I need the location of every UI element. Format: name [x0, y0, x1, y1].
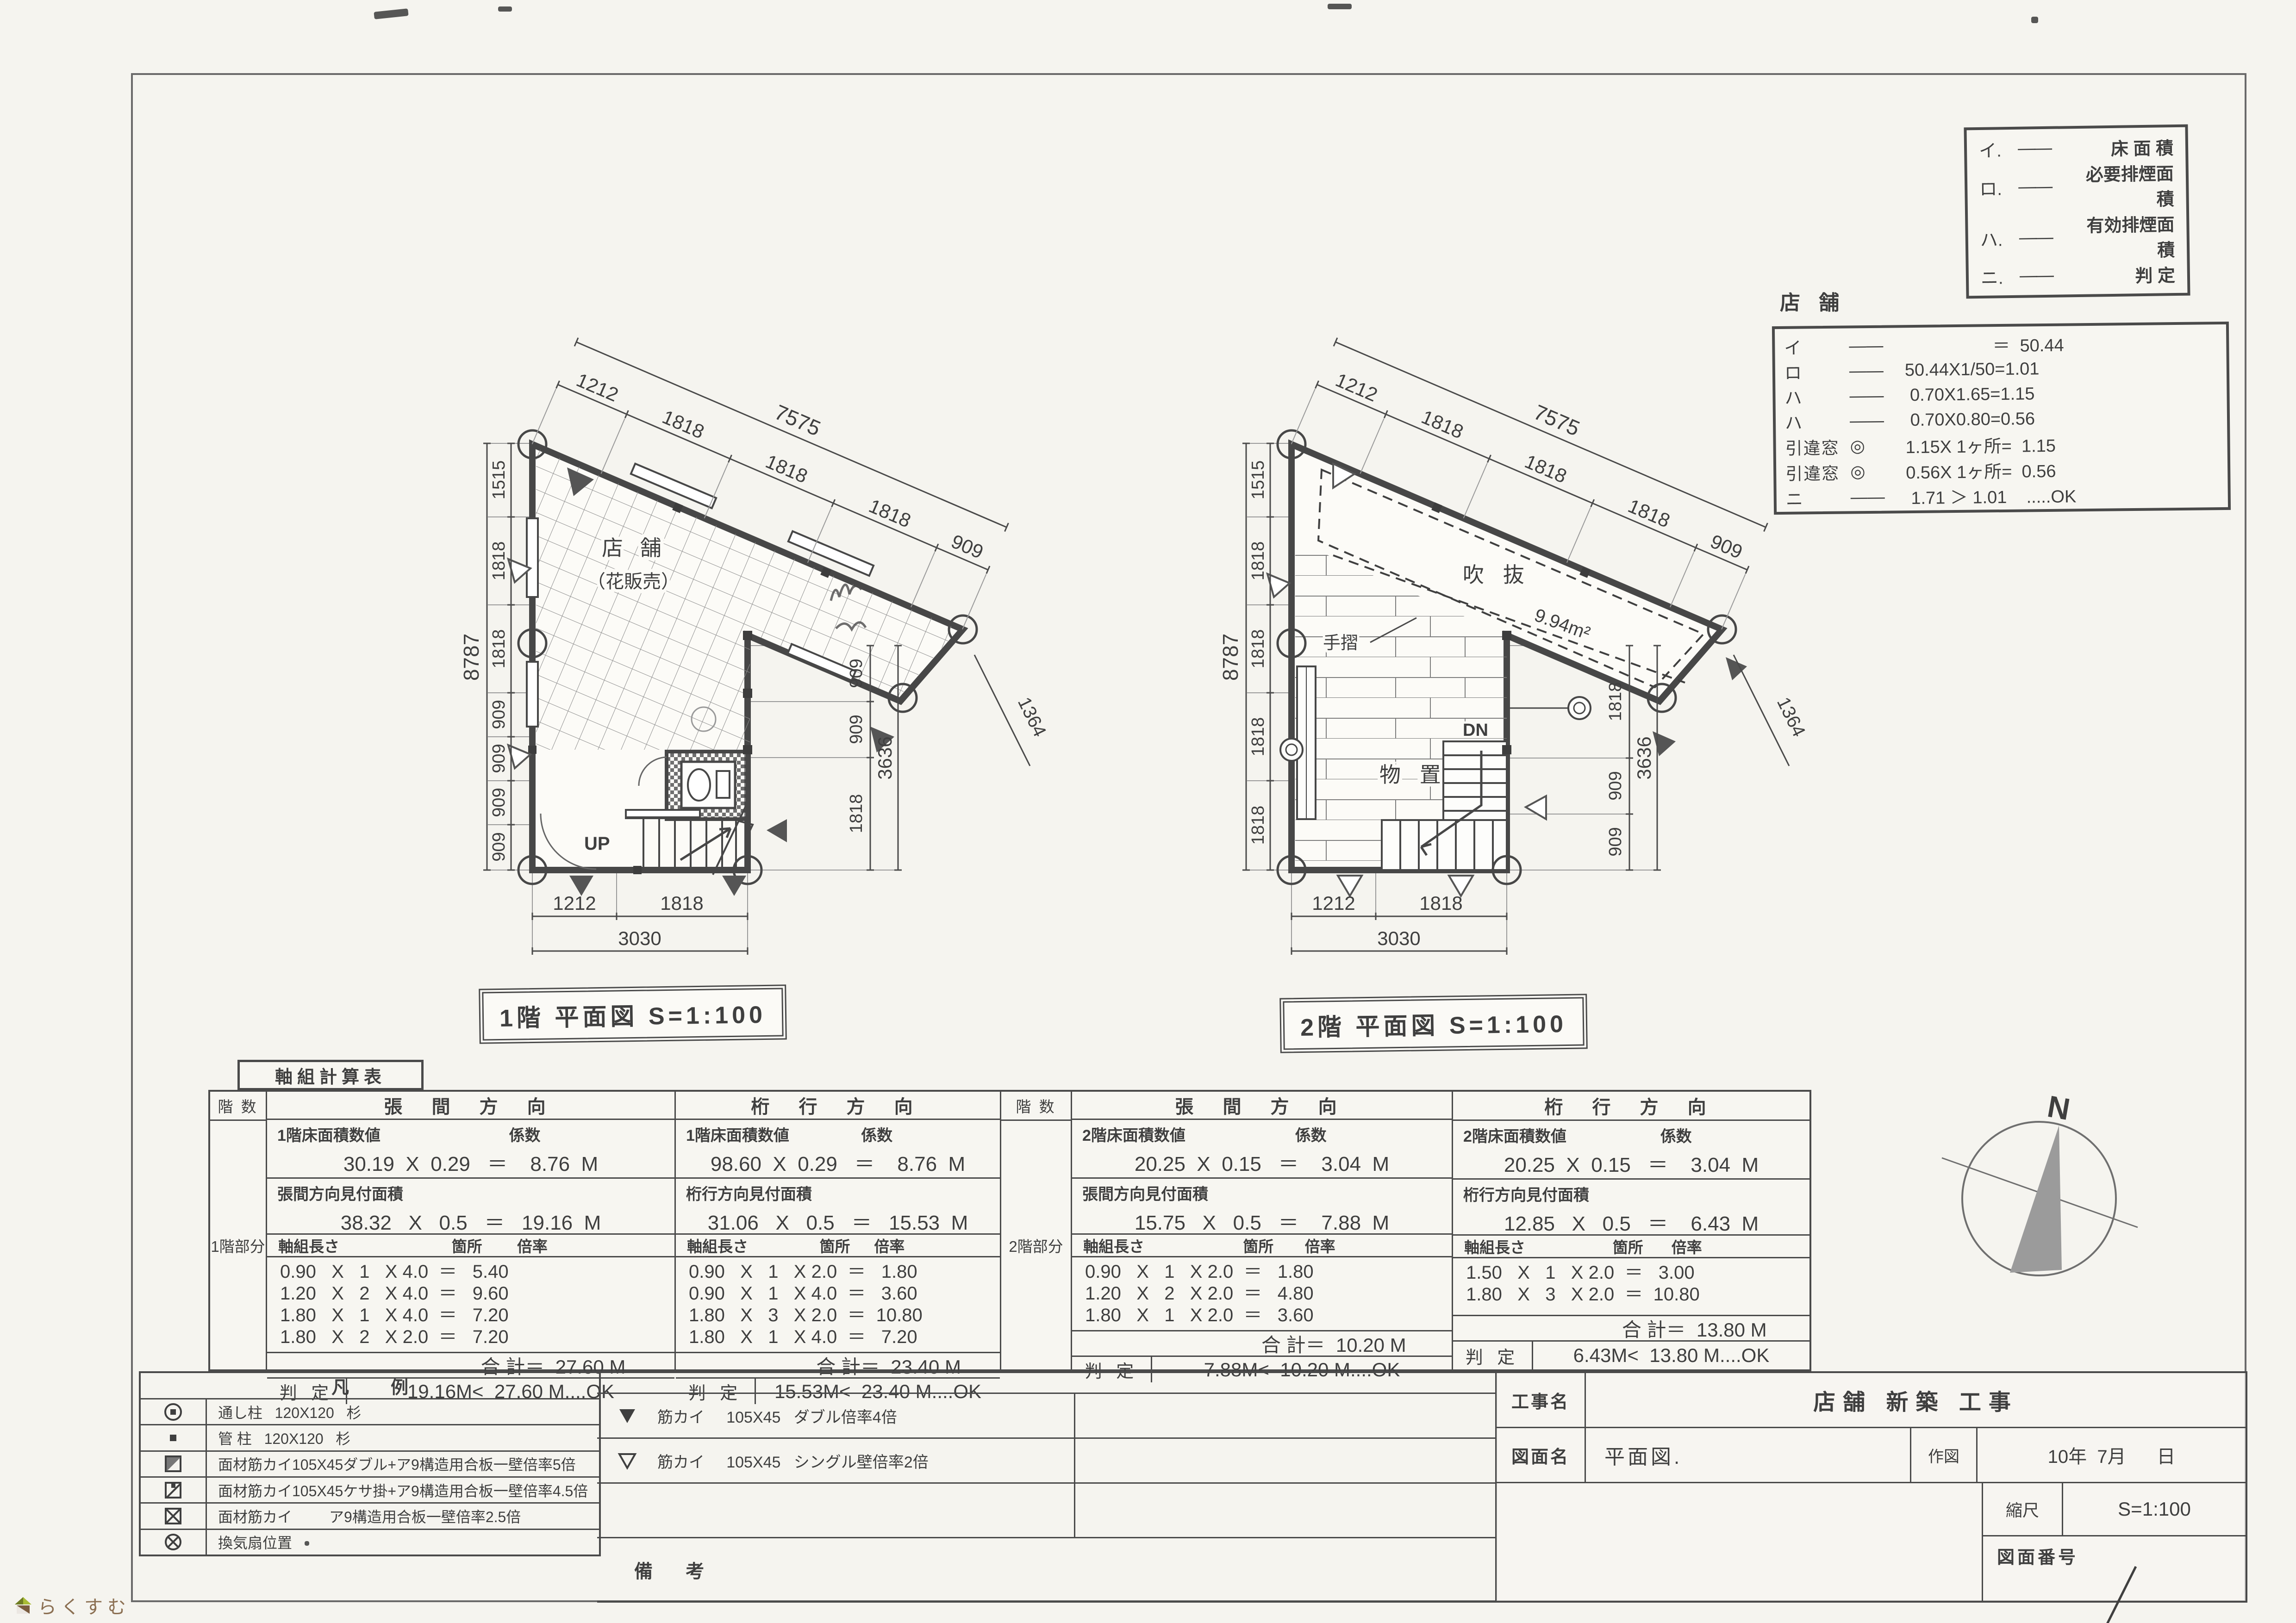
legend-label: 必要排煙面積	[2073, 159, 2174, 211]
svg-text:909: 909	[948, 530, 986, 563]
brace-desc: 筋カイ 105X45 ダブル倍率4倍	[657, 1405, 1074, 1427]
svg-text:1818: 1818	[866, 495, 914, 532]
coef-label: 係数	[861, 1123, 892, 1145]
legend-label: 有効排煙面積	[2074, 210, 2175, 262]
coef-label: 係数	[1295, 1123, 1327, 1145]
floor-area-row: 1階床面積数値 係数 30.19 X 0.29 ＝ 8.76 M	[267, 1120, 674, 1179]
direction-header: 桁 行 方 向	[1453, 1092, 1809, 1121]
svg-text:1515: 1515	[489, 460, 509, 500]
watermark-text: らくすむ	[38, 1592, 131, 1619]
through-post-icon	[141, 1399, 207, 1424]
dash-symbol: ――	[2018, 176, 2074, 197]
col-factor: 倍率	[1305, 1234, 1441, 1256]
dash-symbol: ――	[2020, 265, 2076, 286]
facade-label: 張間方向見付面積	[277, 1181, 403, 1204]
filled-triangle-icon	[597, 1394, 657, 1437]
room-label-storage: 物 置	[1379, 763, 1447, 787]
dim-chain-bottom: 1212 1818	[532, 892, 748, 920]
calc-expr: 0.56X 1ヶ所= 0.56	[1906, 455, 2219, 484]
svg-text:1212: 1212	[573, 369, 621, 406]
area-expr: 20.25 X 0.15 ＝ 3.04 M	[1463, 1148, 1799, 1178]
svg-text:909: 909	[489, 744, 509, 773]
floor2-plan-title: 2階 平面図 S=1:100	[1279, 994, 1587, 1053]
svg-text:1212: 1212	[553, 892, 596, 914]
svg-text:1818: 1818	[1522, 450, 1570, 487]
svg-text:3030: 3030	[618, 927, 661, 949]
room-label-shop: 店 舗	[602, 536, 667, 560]
calc-expr: 1.15X 1ヶ所= 1.15	[1905, 429, 2218, 458]
svg-text:909: 909	[847, 659, 866, 688]
area-label: 2階床面積数値	[1463, 1124, 1566, 1146]
calc-group-2f-span: 張 間 方 向 2階床面積数値 係数 20.25 X 0.15 ＝ 3.04 M…	[1072, 1092, 1453, 1369]
legend-table-title: 凡例	[141, 1373, 599, 1399]
vent-fan-icon	[141, 1530, 207, 1555]
legend-row: 管 柱 120X120 杉	[141, 1425, 599, 1451]
legend-row: ハ. ―― 有効排煙面積	[1980, 210, 2175, 264]
drawing-number-cell: 図面番号	[1983, 1536, 2246, 1601]
judge-label: 判 定	[1453, 1342, 1533, 1369]
calc-rows: 0.90 X 1 X 2.0 ＝ 1.801.20 X 2 X 2.0 ＝ 4.…	[1072, 1257, 1452, 1331]
svg-text:1818: 1818	[1419, 892, 1462, 914]
site-watermark: らくすむ	[13, 1592, 131, 1619]
col-count: 箇所	[1585, 1235, 1672, 1257]
svg-text:1818: 1818	[1606, 682, 1625, 721]
svg-text:1212: 1212	[1332, 369, 1380, 406]
legend-desc: 面材筋カイ105X45ケサ掛+ア9構造用合板一壁倍率4.5倍	[207, 1480, 599, 1501]
legend-row: 換気扇位置	[141, 1530, 599, 1555]
svg-text:7575: 7575	[1530, 400, 1584, 441]
legend-desc: 管 柱 120X120 杉	[207, 1427, 599, 1449]
calc-rows: 0.90 X 1 X 2.0 ＝ 1.800.90 X 1 X 4.0 ＝ 3.…	[676, 1257, 1000, 1353]
wall-calc-table: 階 数 1階部分 張 間 方 向 1階床面積数値 係数 30.19 X 0.29…	[208, 1090, 1811, 1371]
compass-rose: N	[1940, 1074, 2139, 1291]
legend-row: イ. ―― 床 面 積	[1979, 134, 2174, 162]
empty-cell	[1497, 1483, 1983, 1601]
facade-area-row: 張間方向見付面積 15.75 X 0.5 ＝ 7.88 M	[1072, 1179, 1452, 1235]
svg-text:1818: 1818	[1248, 629, 1268, 669]
legend-label: 床 面 積	[2073, 134, 2174, 161]
svg-text:1212: 1212	[1312, 892, 1355, 914]
svg-text:1818: 1818	[1248, 806, 1268, 845]
svg-text:8787: 8787	[463, 634, 483, 681]
panel-brace-kesa-icon	[141, 1478, 207, 1502]
hollow-triangle-icon	[597, 1439, 657, 1482]
sub-column-headers: 軸組長さ 箇所 倍率	[1453, 1236, 1809, 1258]
svg-text:909: 909	[489, 832, 509, 861]
calc-expr: ＝ 50.44	[1904, 329, 2217, 358]
facade-area-row: 張間方向見付面積 38.32 X 0.5 ＝ 19.16 M	[267, 1179, 674, 1235]
dim-diagonal: 1364	[974, 655, 1050, 766]
svg-text:1818: 1818	[1248, 717, 1268, 757]
standard-post-icon	[141, 1425, 207, 1450]
svg-text:1818: 1818	[1418, 406, 1466, 443]
stair-down-label: DN	[1463, 721, 1488, 740]
floor2-plan-drawing: 吹 抜 9.94m² 手摺 物 置 DN	[1222, 250, 1870, 981]
scale-value: S=1:100	[2063, 1483, 2246, 1535]
house-logo-icon	[13, 1595, 33, 1616]
total-row: 合 計＝ 13.80 M	[1453, 1316, 1809, 1342]
svg-text:1818: 1818	[659, 406, 707, 443]
col-factor: 倍率	[874, 1234, 989, 1256]
area-label: 1階床面積数値	[277, 1123, 381, 1145]
legend-row: ニ. ―― 判 定	[1981, 261, 2176, 289]
area-expr: 20.25 X 0.15 ＝ 3.04 M	[1082, 1147, 1441, 1177]
column-header: 階 数	[1001, 1092, 1071, 1121]
dim-chain-bottom-total: 3030	[1291, 927, 1507, 955]
facade-expr: 31.06 X 0.5 ＝ 15.53 M	[686, 1206, 990, 1236]
area-label: 1階床面積数値	[686, 1123, 789, 1145]
svg-text:909: 909	[1606, 771, 1625, 800]
svg-text:909: 909	[489, 788, 509, 817]
floor-area-row: 1階床面積数値 係数 98.60 X 0.29 ＝ 8.76 M	[676, 1120, 1000, 1179]
svg-text:1364: 1364	[1014, 694, 1050, 740]
svg-text:7575: 7575	[771, 400, 824, 441]
legend-desc: 面材筋カイ ア9構造用合板一壁倍率2.5倍	[207, 1505, 599, 1527]
col-count: 箇所	[1212, 1234, 1305, 1256]
drawing-name-row: 図面名 平面図. 作図 10年 7月 日	[1497, 1428, 2246, 1483]
judge-value: 6.43M< 13.80 M....OK	[1533, 1342, 1809, 1369]
legend-desc: 通し柱 120X120 杉	[207, 1401, 599, 1423]
calc-group-1f-span: 張 間 方 向 1階床面積数値 係数 30.19 X 0.29 ＝ 8.76 M…	[267, 1092, 676, 1369]
svg-text:1364: 1364	[1773, 694, 1809, 740]
dim-chain-bottom-total: 3030	[532, 927, 748, 955]
scale-row: 縮尺 S=1:100	[1983, 1483, 2246, 1536]
direction-header: 桁 行 方 向	[676, 1092, 1000, 1120]
svg-text:1515: 1515	[1248, 460, 1268, 500]
svg-text:3030: 3030	[1377, 927, 1420, 949]
symbol-legend-table: 凡例 通し柱 120X120 杉 管 柱 120X120 杉 面材筋カイ105X…	[139, 1371, 601, 1556]
floor1-plan-drawing: 店 舗 （花販売） UP	[463, 250, 1111, 981]
remarks-row: 備 考	[597, 1538, 1495, 1601]
empty-cell	[1074, 1439, 1495, 1482]
floor2-row-label: 2階部分	[1001, 1121, 1071, 1369]
calc-rows: 1.50 X 1 X 2.0 ＝ 3.001.80 X 3 X 2.0 ＝ 10…	[1453, 1258, 1809, 1316]
svg-text:1818: 1818	[489, 629, 509, 669]
col-length: 軸組長さ	[1464, 1235, 1585, 1257]
smoke-legend-box: イ. ―― 床 面 積 ロ. ―― 必要排煙面積 ハ. ―― 有効排煙面積 ニ.…	[1964, 124, 2190, 299]
floor-area-row: 2階床面積数値 係数 20.25 X 0.15 ＝ 3.04 M	[1453, 1121, 1809, 1180]
scan-artifact	[1328, 4, 1352, 9]
dim-chain-left: 1515 1818 1818 1818 1818	[1248, 443, 1274, 870]
svg-text:1818: 1818	[660, 892, 703, 914]
stair-up-label: UP	[584, 833, 610, 854]
coef-label: 係数	[509, 1123, 540, 1145]
area-expr: 30.19 X 0.29 ＝ 8.76 M	[277, 1147, 664, 1177]
scan-artifact	[2031, 17, 2038, 23]
dim-chain-left: 1515 1818 1818 909 909 909 909	[489, 443, 515, 870]
scan-artifact	[374, 8, 408, 19]
project-label: 工事名	[1497, 1373, 1586, 1427]
col-length: 軸組長さ	[278, 1234, 417, 1256]
svg-text:3636: 3636	[1633, 736, 1655, 779]
svg-text:909: 909	[847, 715, 866, 744]
floor1-plan-title: 1階 平面図 S=1:100	[479, 984, 786, 1044]
floor-number-column: 階 数 2階部分	[1001, 1092, 1072, 1369]
brace-desc: 筋カイ 105X45 シングル壁倍率2倍	[657, 1449, 1074, 1472]
total-row: 合 計＝ 10.20 M	[1072, 1331, 1452, 1357]
scale-label: 縮尺	[1983, 1483, 2063, 1535]
remarks-label: 備 考	[597, 1556, 773, 1583]
legend-key: ニ.	[1981, 263, 2020, 289]
legend-key: ロ.	[1979, 174, 2019, 200]
area-expr: 98.60 X 0.29 ＝ 8.76 M	[686, 1147, 990, 1177]
wall-table-title: 軸組計算表	[237, 1060, 424, 1090]
panel-brace-single-icon	[141, 1504, 207, 1528]
compass-needle	[2010, 1126, 2062, 1273]
void-label: 吹 抜	[1463, 563, 1531, 587]
calc-expr: 50.44X1/50=1.01	[1905, 357, 2217, 380]
bottom-row: 縮尺 S=1:100 図面番号	[1497, 1483, 2246, 1601]
sub-column-headers: 軸組長さ 箇所 倍率	[267, 1235, 674, 1257]
drawing-number-label: 図面番号	[1997, 1548, 2078, 1567]
calc-expr: 0.70X1.65=1.15	[1905, 382, 2217, 405]
empty-row	[597, 1484, 1495, 1538]
direction-header: 張 間 方 向	[1072, 1092, 1452, 1120]
facade-label: 張間方向見付面積	[1082, 1181, 1208, 1204]
scanned-floor-plan-sheet: イ. ―― 床 面 積 ロ. ―― 必要排煙面積 ハ. ―― 有効排煙面積 ニ.…	[0, 0, 2296, 1623]
calc-group-1f-ridge: 桁 行 方 向 1階床面積数値 係数 98.60 X 0.29 ＝ 8.76 M…	[676, 1092, 1001, 1369]
legend-row: 面材筋カイ105X45ケサ掛+ア9構造用合板一壁倍率4.5倍	[141, 1478, 599, 1504]
column-header: 階 数	[210, 1092, 266, 1121]
legend-row: ロ. ―― 必要排煙面積	[1979, 159, 2174, 213]
scan-artifact	[498, 6, 512, 12]
coef-label: 係数	[1660, 1124, 1692, 1146]
drawn-label: 作図	[1911, 1428, 1978, 1482]
dash-symbol: ――	[2019, 227, 2075, 248]
dash-symbol: ――	[2018, 138, 2074, 159]
col-count: 箇所	[796, 1234, 874, 1256]
dim-chain-left-total: 8787	[463, 443, 491, 870]
brace-row: 筋カイ 105X45 シングル壁倍率2倍	[597, 1439, 1495, 1484]
project-name-row: 工事名 店舗 新築 工事	[1497, 1373, 2246, 1428]
facade-expr: 15.75 X 0.5 ＝ 7.88 M	[1082, 1206, 1441, 1236]
floor-number-column: 階 数 1階部分	[210, 1092, 267, 1369]
dim-chain-left-total: 8787	[1222, 443, 1250, 870]
legend-key: ハ.	[1980, 225, 2019, 251]
col-length: 軸組長さ	[687, 1234, 796, 1256]
svg-text:8787: 8787	[1222, 634, 1242, 681]
col-count: 箇所	[417, 1234, 517, 1256]
direction-header: 張 間 方 向	[267, 1092, 674, 1120]
col-length: 軸組長さ	[1083, 1234, 1212, 1256]
calc-expr: 1.71 ＞ 1.01 .....OK	[1906, 480, 2219, 509]
legend-row: 面材筋カイ ア9構造用合板一壁倍率2.5倍	[141, 1504, 599, 1530]
dim-diagonal: 1364	[1734, 655, 1809, 766]
calc-group-2f-ridge: 桁 行 方 向 2階床面積数値 係数 20.25 X 0.15 ＝ 3.04 M…	[1453, 1092, 1809, 1369]
area-label: 2階床面積数値	[1082, 1123, 1185, 1145]
empty-cell	[1074, 1394, 1495, 1437]
drawing-number-slash	[2090, 1562, 2145, 1623]
col-factor: 倍率	[1672, 1235, 1798, 1257]
floor-area-row: 2階床面積数値 係数 20.25 X 0.15 ＝ 3.04 M	[1072, 1120, 1452, 1179]
empty-row	[597, 1373, 1495, 1394]
svg-text:909: 909	[1606, 827, 1625, 856]
handrail-label: 手摺	[1323, 634, 1358, 653]
sub-column-headers: 軸組長さ 箇所 倍率	[1072, 1235, 1452, 1257]
floor1-row-label: 1階部分	[210, 1121, 266, 1369]
calc-expr: 0.70X0.80=0.56	[1905, 407, 2218, 430]
legend-row: 通し柱 120X120 杉	[141, 1399, 599, 1425]
legend-row: 面材筋カイ105X45ダブル+ア9構造用合板一壁倍率5倍	[141, 1452, 599, 1478]
brace-remarks-table: 筋カイ 105X45 ダブル倍率4倍 筋カイ 105X45 シングル壁倍率2倍 …	[597, 1371, 1497, 1603]
drawing-name: 平面図.	[1586, 1428, 1911, 1482]
drawn-date: 10年 7月 日	[1978, 1428, 2246, 1482]
legend-label: 判 定	[2075, 261, 2176, 288]
title-block: 工事名 店舗 新築 工事 図面名 平面図. 作図 10年 7月 日 縮尺 S=1…	[1495, 1371, 2247, 1603]
calc-rows: 0.90 X 1 X 4.0 ＝ 5.401.20 X 2 X 4.0 ＝ 9.…	[267, 1257, 674, 1353]
facade-label: 桁行方向見付面積	[686, 1181, 812, 1204]
facade-expr: 12.85 X 0.5 ＝ 6.43 M	[1463, 1207, 1799, 1237]
col-factor: 倍率	[517, 1234, 663, 1256]
svg-text:909: 909	[489, 700, 509, 729]
room-label-shop-sub: （花販売）	[587, 572, 680, 592]
brace-row: 筋カイ 105X45 ダブル倍率4倍	[597, 1394, 1495, 1439]
facade-expr: 38.32 X 0.5 ＝ 19.16 M	[277, 1206, 664, 1236]
facade-area-row: 桁行方向見付面積 31.06 X 0.5 ＝ 15.53 M	[676, 1179, 1000, 1235]
legend-desc: 換気扇位置	[207, 1531, 599, 1553]
judge-row: 判 定 6.43M< 13.80 M....OK	[1453, 1342, 1809, 1369]
dim-chain-bottom: 1212 1818	[1291, 892, 1507, 920]
svg-text:1818: 1818	[1625, 495, 1673, 532]
project-name: 店舗 新築 工事	[1586, 1373, 2246, 1427]
legend-desc: 面材筋カイ105X45ダブル+ア9構造用合板一壁倍率5倍	[207, 1453, 599, 1474]
drawing-label: 図面名	[1497, 1428, 1586, 1482]
toilet-symbol	[688, 769, 710, 801]
svg-text:1818: 1818	[489, 541, 509, 581]
facade-area-row: 桁行方向見付面積 12.85 X 0.5 ＝ 6.43 M	[1453, 1180, 1809, 1236]
panel-brace-double-icon	[141, 1452, 207, 1476]
sub-column-headers: 軸組長さ 箇所 倍率	[676, 1235, 1000, 1257]
svg-text:1818: 1818	[762, 450, 811, 487]
svg-text:3636: 3636	[874, 736, 896, 779]
facade-label: 桁行方向見付面積	[1463, 1182, 1589, 1205]
svg-text:1818: 1818	[1248, 541, 1268, 581]
svg-text:1818: 1818	[847, 794, 866, 833]
legend-key: イ.	[1979, 136, 2018, 162]
north-label: N	[2045, 1089, 2073, 1126]
svg-text:909: 909	[1707, 530, 1746, 563]
